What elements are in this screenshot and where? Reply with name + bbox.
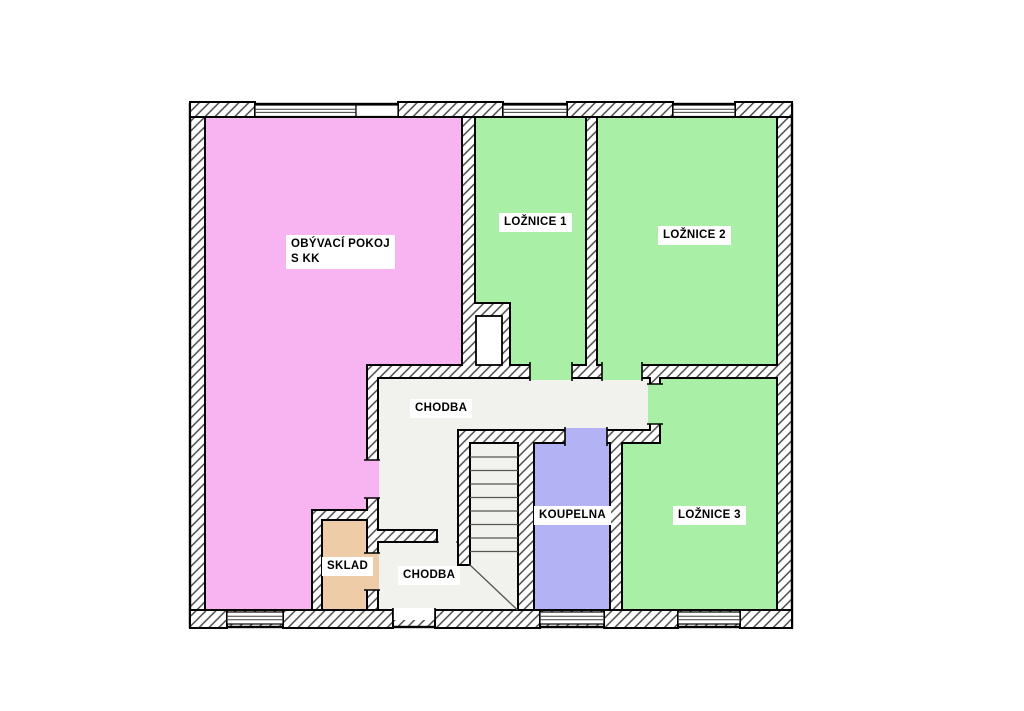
room-label-loznice-2: LOŽNICE 2 <box>658 226 731 245</box>
room-label-loznice-3: LOŽNICE 3 <box>673 506 746 525</box>
door-opening-chodba <box>439 537 457 547</box>
room-label-sklad: SKLAD <box>322 557 373 576</box>
room-label-koupelna: KOUPELNA <box>534 506 611 525</box>
floor-plan-canvas <box>0 0 1024 711</box>
door-opening-loznice-1 <box>530 362 572 381</box>
window-loznice-3 <box>678 612 740 624</box>
window-koupelna <box>540 612 604 624</box>
door-opening-obyvaci <box>364 460 380 498</box>
balcony-door-opening <box>356 105 398 117</box>
room-label-line: S KK <box>291 252 390 267</box>
door-opening-koupelna <box>565 427 607 446</box>
room-koupelna <box>534 443 610 610</box>
door-opening-loznice-3 <box>647 384 663 424</box>
window-obyvaci <box>255 105 356 117</box>
entrance-opening <box>393 608 435 620</box>
room-label-obyvaci-pokoj: OBÝVACÍ POKOJ S KK <box>286 235 395 269</box>
floor-plan: OBÝVACÍ POKOJ S KK LOŽNICE 1 LOŽNICE 2 C… <box>0 0 1024 711</box>
window-loznice-1 <box>503 105 567 117</box>
window-obyvaci-bottom <box>227 612 283 624</box>
shaft <box>476 316 502 365</box>
room-label-chodba-upper: CHODBA <box>410 399 472 418</box>
room-label-line: OBÝVACÍ POKOJ <box>291 237 390 252</box>
window-loznice-2 <box>673 105 735 117</box>
room-label-loznice-1: LOŽNICE 1 <box>499 213 572 232</box>
door-opening-loznice-2 <box>602 362 642 381</box>
room-label-chodba-lower: CHODBA <box>398 566 460 585</box>
